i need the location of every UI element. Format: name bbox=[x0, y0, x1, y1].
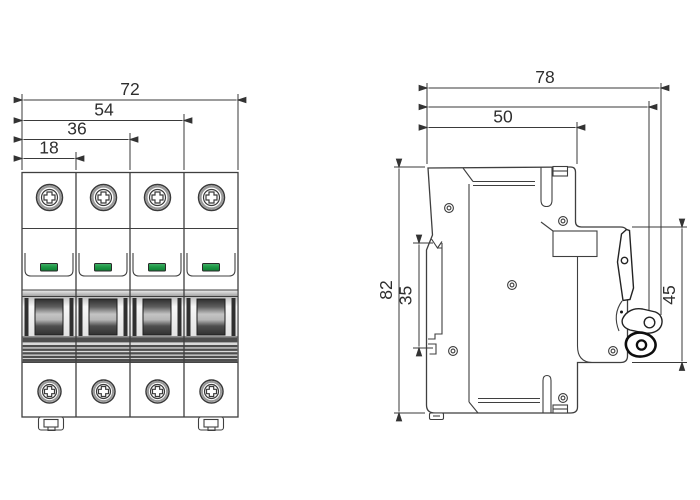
rivet-icon bbox=[449, 347, 458, 356]
screw-head-icon bbox=[91, 185, 117, 211]
rivet-icon bbox=[559, 394, 568, 403]
screw-head-icon bbox=[92, 380, 115, 403]
handle-side-strip bbox=[178, 298, 182, 336]
screw-head-icon bbox=[199, 185, 225, 211]
front-dimensions: 72 54 36 18 bbox=[22, 79, 238, 170]
toggle-handle bbox=[143, 299, 171, 335]
rivet-icon bbox=[508, 281, 517, 290]
drawing-canvas: 72 54 36 18 bbox=[0, 0, 700, 500]
dimension-one-pole: 18 bbox=[24, 138, 75, 159]
indicator-window bbox=[203, 264, 220, 272]
dim-label-35: 35 bbox=[396, 286, 416, 305]
screw-head-icon bbox=[37, 185, 63, 211]
rivet-icon bbox=[609, 347, 618, 356]
toggle-handle bbox=[197, 299, 225, 335]
screw-head-icon bbox=[200, 380, 223, 403]
technical-drawing: 72 54 36 18 bbox=[0, 0, 700, 500]
side-view: 78 50 bbox=[376, 67, 687, 420]
dim-label-50: 50 bbox=[493, 107, 513, 127]
dim-label-36: 36 bbox=[67, 119, 86, 139]
handle-side-strip bbox=[133, 298, 137, 336]
dim-label-18: 18 bbox=[39, 138, 58, 158]
din-clip bbox=[199, 417, 224, 431]
dimension-total-width: 72 bbox=[24, 79, 237, 100]
terminal-block bbox=[553, 231, 597, 257]
indicator-window bbox=[41, 264, 58, 272]
rivet-icon bbox=[445, 204, 454, 213]
pivot-dot bbox=[620, 311, 623, 314]
indicator-window bbox=[149, 264, 166, 272]
dimension-two-poles: 36 bbox=[24, 119, 129, 140]
handle-side-strip bbox=[25, 298, 29, 336]
handle-side-strip bbox=[232, 298, 236, 336]
lever-pivot-hole bbox=[621, 257, 627, 263]
rivet-icon bbox=[559, 217, 568, 226]
dim-label-72: 72 bbox=[120, 79, 139, 99]
screw-head-icon bbox=[146, 380, 169, 403]
screw-head-icon bbox=[145, 185, 171, 211]
din-clip bbox=[39, 417, 64, 431]
dim-label-45: 45 bbox=[659, 285, 679, 304]
breaker-side-body bbox=[427, 167, 628, 413]
handle-side-strip bbox=[70, 298, 74, 336]
front-view: 72 54 36 18 bbox=[22, 79, 238, 431]
dimension-body-depth: 50 bbox=[429, 107, 576, 128]
latch-bracket bbox=[622, 309, 662, 334]
dimension-total-depth: 78 bbox=[429, 67, 660, 88]
indicator-window bbox=[95, 264, 112, 272]
trip-cam-hole bbox=[637, 340, 646, 349]
latch-hole bbox=[644, 317, 655, 328]
toggle-handle bbox=[89, 299, 117, 335]
handle-side-strip bbox=[187, 298, 191, 336]
dimension-three-poles: 54 bbox=[24, 100, 183, 121]
dim-label-54: 54 bbox=[94, 100, 114, 120]
screw-head-icon bbox=[38, 380, 61, 403]
handle-side-strip bbox=[79, 298, 83, 336]
dim-label-82: 82 bbox=[376, 280, 396, 299]
toggle-handle bbox=[35, 299, 63, 335]
handle-side-strip bbox=[124, 298, 128, 336]
dim-label-78: 78 bbox=[535, 67, 554, 87]
